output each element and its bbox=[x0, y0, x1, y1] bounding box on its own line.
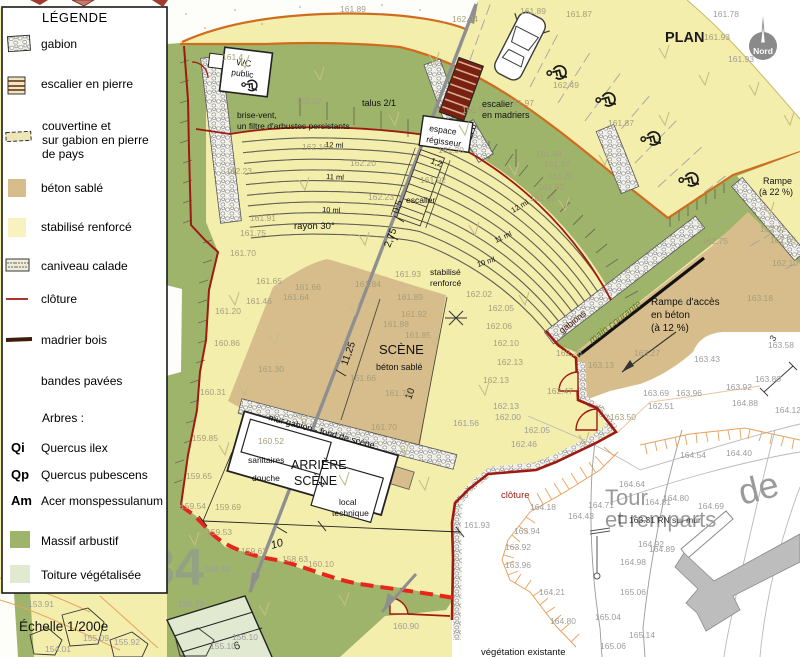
svg-text:162.47: 162.47 bbox=[547, 386, 573, 396]
svg-text:Acer monspessulanum: Acer monspessulanum bbox=[41, 494, 163, 508]
svg-text:162.00: 162.00 bbox=[495, 412, 521, 422]
svg-text:161.30: 161.30 bbox=[438, 145, 464, 155]
svg-text:164.88: 164.88 bbox=[732, 398, 758, 408]
svg-text:escalier en pierre: escalier en pierre bbox=[41, 77, 133, 91]
svg-text:talus 2/1: talus 2/1 bbox=[362, 98, 396, 108]
svg-text:163.58: 163.58 bbox=[768, 340, 794, 350]
svg-text:Qp: Qp bbox=[11, 467, 29, 482]
svg-text:160.31: 160.31 bbox=[200, 387, 226, 397]
svg-text:160.52: 160.52 bbox=[258, 436, 284, 446]
svg-text:local: local bbox=[339, 497, 357, 507]
svg-text:gabion: gabion bbox=[41, 37, 77, 51]
svg-text:(à 22 %): (à 22 %) bbox=[759, 187, 793, 197]
svg-text:164.18: 164.18 bbox=[530, 502, 556, 512]
svg-text:160.90: 160.90 bbox=[393, 621, 419, 631]
svg-text:Arbres :: Arbres : bbox=[42, 411, 84, 425]
svg-text:163.27: 163.27 bbox=[634, 348, 660, 358]
svg-text:161.78: 161.78 bbox=[713, 9, 739, 19]
svg-text:158.32: 158.32 bbox=[204, 564, 230, 574]
svg-text:162.05: 162.05 bbox=[770, 235, 796, 245]
svg-text:Massif arbustif: Massif arbustif bbox=[41, 534, 119, 548]
svg-text:clôture: clôture bbox=[501, 490, 530, 501]
svg-text:165.06: 165.06 bbox=[620, 587, 646, 597]
svg-text:161.56: 161.56 bbox=[453, 418, 479, 428]
svg-text:161.75: 161.75 bbox=[240, 228, 266, 238]
svg-text:161.87: 161.87 bbox=[566, 9, 592, 19]
svg-text:164.69: 164.69 bbox=[698, 501, 724, 511]
svg-text:161.91: 161.91 bbox=[250, 213, 276, 223]
svg-text:163.13: 163.13 bbox=[588, 360, 614, 370]
svg-text:PLAN: PLAN bbox=[665, 30, 704, 46]
svg-text:163.43: 163.43 bbox=[694, 354, 720, 364]
svg-text:163.92: 163.92 bbox=[505, 542, 531, 552]
svg-text:162.04: 162.04 bbox=[452, 14, 478, 24]
svg-text:158.63: 158.63 bbox=[282, 554, 308, 564]
svg-text:végétation existante: végétation existante bbox=[481, 647, 566, 657]
svg-text:LÉGENDE: LÉGENDE bbox=[42, 10, 108, 25]
svg-text:164.80: 164.80 bbox=[550, 616, 576, 626]
svg-text:159.53: 159.53 bbox=[206, 527, 232, 537]
svg-text:159.85: 159.85 bbox=[192, 433, 218, 443]
svg-text:160.10: 160.10 bbox=[308, 559, 334, 569]
svg-text:Toiture végétalisée: Toiture végétalisée bbox=[41, 568, 141, 582]
svg-text:161.64: 161.64 bbox=[283, 292, 309, 302]
svg-text:161.93: 161.93 bbox=[464, 520, 490, 530]
svg-text:bandes pavées: bandes pavées bbox=[41, 374, 122, 388]
svg-text:Rampe: Rampe bbox=[763, 176, 792, 186]
svg-text:161.93: 161.93 bbox=[728, 54, 754, 64]
svg-text:164.98: 164.98 bbox=[620, 557, 646, 567]
svg-text:162.10: 162.10 bbox=[493, 338, 519, 348]
svg-text:162.13: 162.13 bbox=[493, 401, 519, 411]
svg-text:163.69: 163.69 bbox=[643, 388, 669, 398]
svg-text:161.93: 161.93 bbox=[395, 269, 421, 279]
svg-text:163.18: 163.18 bbox=[747, 293, 773, 303]
svg-text:stabilisé: stabilisé bbox=[430, 267, 461, 277]
svg-text:brise-vent,: brise-vent, bbox=[237, 110, 277, 120]
svg-text:161.84: 161.84 bbox=[355, 279, 381, 289]
svg-text:de pays: de pays bbox=[42, 147, 84, 161]
svg-text:162.06: 162.06 bbox=[486, 321, 512, 331]
svg-text:160.86: 160.86 bbox=[214, 338, 240, 348]
svg-text:163.31 RN sur mur: 163.31 RN sur mur bbox=[629, 515, 701, 525]
svg-text:164.81: 164.81 bbox=[645, 497, 671, 507]
svg-text:164.21: 164.21 bbox=[539, 587, 565, 597]
svg-text:161.84: 161.84 bbox=[536, 149, 562, 159]
svg-text:161.93: 161.93 bbox=[704, 32, 730, 42]
svg-text:Échelle 1/200e: Échelle 1/200e bbox=[19, 619, 108, 634]
svg-text:161.20: 161.20 bbox=[215, 306, 241, 316]
svg-text:164.43: 164.43 bbox=[568, 511, 594, 521]
svg-text:161.70: 161.70 bbox=[230, 248, 256, 258]
svg-text:161.89: 161.89 bbox=[340, 4, 366, 14]
svg-text:161.85: 161.85 bbox=[405, 330, 431, 340]
svg-text:161.46: 161.46 bbox=[246, 296, 272, 306]
svg-text:10 ml: 10 ml bbox=[322, 205, 341, 215]
svg-text:162.13: 162.13 bbox=[497, 357, 523, 367]
svg-text:161.79: 161.79 bbox=[385, 388, 411, 398]
svg-text:stabilisé renforcé: stabilisé renforcé bbox=[41, 220, 132, 234]
svg-text:163.50: 163.50 bbox=[610, 412, 636, 422]
svg-text:159.62: 159.62 bbox=[241, 546, 267, 556]
svg-text:155.09: 155.09 bbox=[83, 633, 109, 643]
svg-text:164.54: 164.54 bbox=[680, 450, 706, 460]
svg-text:renforcé: renforcé bbox=[430, 278, 461, 288]
svg-text:154.01: 154.01 bbox=[45, 644, 71, 654]
svg-text:161.92: 161.92 bbox=[538, 182, 564, 192]
svg-text:162.02: 162.02 bbox=[296, 96, 322, 106]
svg-text:rayon 30°: rayon 30° bbox=[294, 221, 335, 232]
svg-text:162.51: 162.51 bbox=[648, 401, 674, 411]
svg-text:161.87: 161.87 bbox=[544, 159, 570, 169]
svg-text:164.12: 164.12 bbox=[775, 405, 800, 415]
svg-text:161.96: 161.96 bbox=[530, 193, 556, 203]
svg-text:caniveau calade: caniveau calade bbox=[41, 259, 128, 273]
svg-text:155.92: 155.92 bbox=[114, 637, 140, 647]
svg-text:béton sablé: béton sablé bbox=[41, 181, 103, 195]
svg-text:162.05: 162.05 bbox=[524, 425, 550, 435]
svg-text:douche: douche bbox=[252, 473, 280, 483]
svg-text:161.70: 161.70 bbox=[371, 422, 397, 432]
svg-text:161.88: 161.88 bbox=[383, 319, 409, 329]
svg-text:155.10: 155.10 bbox=[210, 641, 236, 651]
svg-text:couvertine et: couvertine et bbox=[42, 119, 111, 133]
svg-text:162.75: 162.75 bbox=[702, 236, 728, 246]
svg-text:ARRIÈRE: ARRIÈRE bbox=[291, 457, 347, 472]
svg-text:technique: technique bbox=[332, 508, 369, 518]
svg-text:(à 12 %): (à 12 %) bbox=[651, 323, 689, 334]
svg-text:162.23: 162.23 bbox=[368, 192, 394, 202]
svg-text:161.92: 161.92 bbox=[401, 309, 427, 319]
svg-text:un filtre d'arbustes persistan: un filtre d'arbustes persistants bbox=[237, 121, 350, 131]
svg-text:161.92: 161.92 bbox=[420, 175, 446, 185]
svg-text:161.66: 161.66 bbox=[295, 282, 321, 292]
svg-text:161.66: 161.66 bbox=[350, 373, 376, 383]
svg-text:Nord: Nord bbox=[753, 46, 773, 56]
svg-text:escalier: escalier bbox=[406, 195, 435, 205]
svg-text:11 ml: 11 ml bbox=[326, 172, 345, 182]
svg-text:165.06: 165.06 bbox=[600, 641, 626, 651]
svg-text:162.20: 162.20 bbox=[350, 158, 376, 168]
svg-text:161.85: 161.85 bbox=[548, 171, 574, 181]
svg-text:Quercus ilex: Quercus ilex bbox=[41, 441, 108, 455]
svg-text:153.91: 153.91 bbox=[28, 599, 54, 609]
svg-text:en béton: en béton bbox=[651, 310, 690, 321]
svg-text:162.46: 162.46 bbox=[511, 439, 537, 449]
svg-text:159.65: 159.65 bbox=[186, 471, 212, 481]
svg-text:162.16: 162.16 bbox=[302, 142, 328, 152]
svg-text:162.02: 162.02 bbox=[760, 224, 786, 234]
svg-text:SCÈNE: SCÈNE bbox=[379, 342, 424, 357]
svg-text:163.80: 163.80 bbox=[755, 374, 781, 384]
svg-text:159.54: 159.54 bbox=[180, 501, 206, 511]
svg-text:164.89: 164.89 bbox=[649, 544, 675, 554]
svg-text:162.49: 162.49 bbox=[553, 80, 579, 90]
svg-text:161.87: 161.87 bbox=[608, 118, 634, 128]
svg-text:164.40: 164.40 bbox=[726, 448, 752, 458]
svg-text:161.30: 161.30 bbox=[258, 364, 284, 374]
svg-text:164.71: 164.71 bbox=[588, 500, 614, 510]
svg-text:161.89: 161.89 bbox=[520, 6, 546, 16]
svg-text:162.10: 162.10 bbox=[772, 258, 798, 268]
svg-text:sur gabion en pierre: sur gabion en pierre bbox=[42, 133, 149, 147]
svg-text:161.89: 161.89 bbox=[397, 292, 423, 302]
svg-text:162.23: 162.23 bbox=[226, 166, 252, 176]
svg-text:162.13: 162.13 bbox=[483, 375, 509, 385]
svg-text:159.69: 159.69 bbox=[215, 502, 241, 512]
svg-text:162.05: 162.05 bbox=[488, 303, 514, 313]
svg-text:Qi: Qi bbox=[11, 440, 25, 455]
svg-text:béton sablé: béton sablé bbox=[376, 362, 423, 372]
svg-text:clôture: clôture bbox=[41, 292, 77, 306]
svg-text:161.96: 161.96 bbox=[462, 105, 488, 115]
svg-text:en madriers: en madriers bbox=[482, 110, 530, 120]
svg-text:165.14: 165.14 bbox=[629, 630, 655, 640]
svg-text:162.02: 162.02 bbox=[466, 289, 492, 299]
svg-text:156.79: 156.79 bbox=[178, 599, 204, 609]
svg-text:Am: Am bbox=[11, 493, 32, 508]
svg-text:madrier bois: madrier bois bbox=[41, 333, 107, 347]
svg-text:163.96: 163.96 bbox=[676, 388, 702, 398]
svg-text:sanitaires: sanitaires bbox=[248, 455, 284, 465]
svg-text:161.65: 161.65 bbox=[256, 276, 282, 286]
svg-text:163.94: 163.94 bbox=[514, 526, 540, 536]
svg-text:Quercus pubescens: Quercus pubescens bbox=[41, 468, 148, 482]
svg-text:161.97: 161.97 bbox=[508, 98, 534, 108]
svg-text:162.26: 162.26 bbox=[556, 348, 582, 358]
svg-text:163.92: 163.92 bbox=[726, 382, 752, 392]
svg-text:164.64: 164.64 bbox=[619, 479, 645, 489]
svg-text:163.96: 163.96 bbox=[505, 560, 531, 570]
svg-text:165.04: 165.04 bbox=[595, 612, 621, 622]
